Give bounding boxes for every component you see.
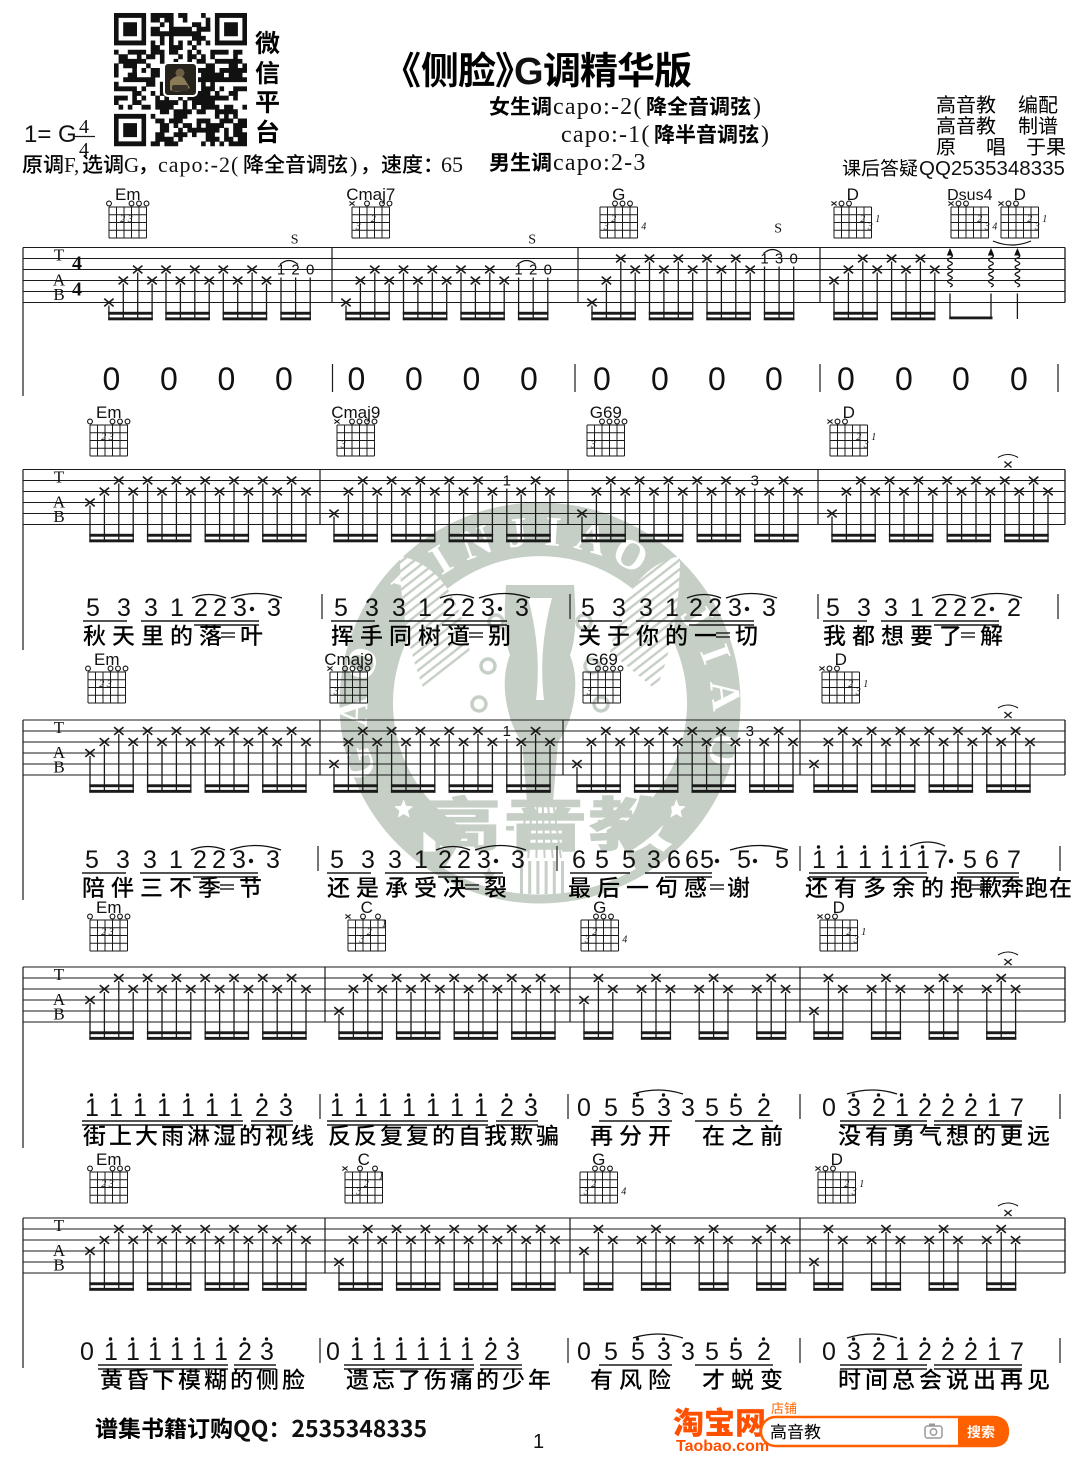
svg-text:2: 2 — [255, 1094, 269, 1122]
svg-text:0: 0 — [80, 1338, 94, 1366]
svg-text:2: 2 — [1007, 594, 1021, 622]
svg-text:5: 5 — [604, 1094, 618, 1122]
svg-text:0: 0 — [577, 1338, 591, 1366]
svg-text:1: 1 — [875, 214, 880, 225]
svg-text:6: 6 — [572, 846, 586, 874]
svg-text:1: 1 — [987, 1338, 1001, 1366]
svg-text:3: 3 — [515, 594, 529, 622]
svg-text:): ) — [761, 122, 769, 148]
svg-text:3: 3 — [260, 1338, 274, 1366]
svg-text:1: 1 — [503, 473, 511, 490]
svg-text:2: 2 — [484, 1338, 498, 1366]
svg-text:3: 3 — [775, 251, 783, 268]
svg-text:2: 2 — [101, 1179, 106, 1190]
svg-text:1: 1 — [170, 1338, 184, 1366]
svg-text:3: 3 — [583, 1187, 589, 1198]
svg-text:3: 3 — [681, 1338, 695, 1366]
svg-text:5: 5 — [729, 1338, 743, 1366]
svg-text:0: 0 — [1010, 361, 1028, 397]
svg-text:Em: Em — [115, 185, 141, 204]
svg-text:2: 2 — [964, 1338, 978, 1366]
svg-text:5: 5 — [826, 594, 840, 622]
svg-text:1: 1 — [192, 1338, 206, 1366]
svg-text:2: 2 — [194, 594, 208, 622]
svg-text:7: 7 — [1010, 1338, 1024, 1366]
svg-text:0: 0 — [348, 361, 366, 397]
svg-text:2: 2 — [101, 432, 106, 443]
svg-text:3: 3 — [267, 594, 281, 622]
svg-text:2: 2 — [611, 214, 616, 225]
svg-text:2: 2 — [120, 214, 125, 225]
svg-text:1: 1 — [416, 1338, 430, 1366]
svg-text:3: 3 — [388, 846, 402, 874]
svg-text:7: 7 — [1007, 846, 1021, 874]
svg-text:0: 0 — [326, 1338, 340, 1366]
svg-text:3: 3 — [481, 594, 495, 622]
svg-text:1: 1 — [372, 1338, 386, 1366]
svg-text:B: B — [53, 758, 64, 777]
svg-text:1: 1 — [503, 723, 511, 740]
svg-text:2: 2 — [364, 1179, 369, 1190]
svg-text:1: 1 — [157, 1094, 171, 1122]
svg-text:T: T — [54, 718, 65, 737]
svg-text:capo:-2(: capo:-2( — [158, 152, 239, 177]
svg-text:Em: Em — [96, 898, 122, 917]
svg-text:1: 1 — [858, 846, 872, 874]
svg-text:3: 3 — [1034, 222, 1040, 233]
svg-text:1: 1 — [916, 846, 930, 874]
svg-text:capo:2-3: capo:2-3 — [553, 150, 647, 176]
svg-text:0: 0 — [822, 1338, 836, 1366]
svg-text:A: A — [700, 677, 749, 713]
svg-text:0: 0 — [577, 1094, 591, 1122]
svg-text:5: 5 — [631, 1338, 645, 1366]
svg-text:5: 5 — [334, 594, 348, 622]
svg-text:1: 1 — [181, 1094, 195, 1122]
svg-text:2: 2 — [592, 927, 597, 938]
svg-text:6: 6 — [667, 846, 681, 874]
svg-text:2: 2 — [848, 679, 853, 690]
svg-text:3: 3 — [851, 1187, 857, 1198]
svg-text:3: 3 — [392, 594, 406, 622]
svg-text:3: 3 — [266, 846, 280, 874]
svg-text:1: 1 — [895, 1094, 909, 1122]
svg-text:1: 1 — [214, 1338, 228, 1366]
svg-text:5: 5 — [330, 846, 344, 874]
svg-text:5: 5 — [622, 846, 636, 874]
svg-text:): ) — [350, 152, 357, 177]
svg-text:5: 5 — [86, 594, 100, 622]
svg-text:1: 1 — [414, 846, 428, 874]
svg-text:3: 3 — [355, 222, 361, 233]
svg-text:3: 3 — [365, 594, 379, 622]
svg-text:Em: Em — [94, 650, 120, 669]
svg-text:1: 1 — [169, 846, 183, 874]
svg-text:1: 1 — [170, 594, 184, 622]
svg-text:3: 3 — [586, 687, 592, 698]
svg-text:1: 1 — [1042, 214, 1047, 225]
svg-text:3: 3 — [144, 594, 158, 622]
svg-text:1: 1 — [133, 1094, 147, 1122]
svg-text:0: 0 — [218, 361, 236, 397]
svg-text:1: 1 — [109, 1094, 123, 1122]
svg-text:0: 0 — [651, 361, 669, 397]
svg-text:3: 3 — [639, 594, 653, 622]
svg-text:2: 2 — [591, 1179, 596, 1190]
svg-text:1: 1 — [382, 919, 387, 930]
svg-text:T: T — [54, 468, 65, 487]
svg-text:3: 3 — [728, 594, 742, 622]
svg-text:3: 3 — [746, 723, 754, 740]
svg-text:2: 2 — [918, 1338, 932, 1366]
svg-text:1: 1 — [104, 1338, 118, 1366]
svg-text:2: 2 — [500, 1094, 514, 1122]
svg-text:0: 0 — [765, 361, 783, 397]
svg-text:I: I — [543, 509, 563, 556]
svg-text:3: 3 — [233, 594, 247, 622]
svg-text:G: G — [514, 51, 544, 93]
svg-text:S: S — [291, 233, 299, 248]
svg-text:B: B — [53, 1256, 64, 1275]
svg-text:3: 3 — [361, 846, 375, 874]
svg-text:0: 0 — [895, 361, 913, 397]
svg-text:3: 3 — [855, 687, 861, 698]
svg-text:3: 3 — [847, 1338, 861, 1366]
svg-text:3: 3 — [477, 846, 491, 874]
svg-text:0: 0 — [405, 361, 423, 397]
svg-text:1: 1 — [394, 1338, 408, 1366]
svg-text:3: 3 — [116, 846, 130, 874]
svg-text:65: 65 — [441, 152, 463, 177]
svg-text:2: 2 — [101, 927, 106, 938]
svg-text:3: 3 — [232, 846, 246, 874]
svg-text:3: 3 — [863, 440, 869, 451]
svg-text:7: 7 — [1010, 1094, 1024, 1122]
svg-text:3: 3 — [108, 1179, 114, 1190]
svg-text:3: 3 — [358, 935, 364, 946]
svg-text:0: 0 — [952, 361, 970, 397]
svg-text:3: 3 — [603, 222, 609, 233]
svg-text:3: 3 — [867, 222, 873, 233]
svg-text:3: 3 — [340, 440, 346, 451]
svg-text:1: 1 — [861, 927, 866, 938]
svg-text:0: 0 — [593, 361, 611, 397]
svg-text:1: 1 — [148, 1338, 162, 1366]
svg-text:2: 2 — [529, 262, 537, 279]
svg-text:QQ2535348335: QQ2535348335 — [919, 157, 1065, 180]
svg-text:1: 1 — [438, 1338, 452, 1366]
svg-text:3: 3 — [847, 1094, 861, 1122]
svg-text:2: 2 — [934, 594, 948, 622]
svg-text:0: 0 — [275, 361, 293, 397]
svg-text:1: 1 — [126, 1338, 140, 1366]
svg-text:1: 1 — [880, 846, 894, 874]
svg-text:0: 0 — [790, 251, 798, 268]
svg-text:2: 2 — [941, 1094, 955, 1122]
svg-text:2: 2 — [291, 262, 299, 279]
svg-text:6: 6 — [985, 846, 999, 874]
svg-text:1= G: 1= G — [24, 121, 77, 148]
svg-text:5: 5 — [737, 846, 751, 874]
svg-text:1: 1 — [812, 846, 826, 874]
svg-text:2: 2 — [860, 214, 865, 225]
svg-text:3: 3 — [106, 679, 112, 690]
svg-text:3: 3 — [584, 935, 590, 946]
svg-text:0: 0 — [103, 361, 121, 397]
svg-text:3: 3 — [511, 846, 525, 874]
svg-text:5: 5 — [729, 1094, 743, 1122]
svg-text:1: 1 — [418, 594, 432, 622]
svg-text:4: 4 — [622, 935, 627, 946]
svg-text:2: 2 — [689, 594, 703, 622]
svg-text:3: 3 — [984, 222, 990, 233]
svg-text:4: 4 — [72, 253, 82, 275]
svg-text:4: 4 — [641, 222, 646, 233]
svg-text:1: 1 — [85, 1094, 99, 1122]
svg-text:2: 2 — [371, 214, 376, 225]
svg-text:1: 1 — [863, 679, 868, 690]
svg-text:Dsus4: Dsus4 — [947, 187, 992, 204]
svg-text:1: 1 — [835, 846, 849, 874]
svg-text:4: 4 — [621, 1187, 626, 1198]
svg-text:2: 2 — [99, 679, 104, 690]
svg-text:2: 2 — [918, 1094, 932, 1122]
svg-text:1: 1 — [895, 1338, 909, 1366]
svg-text:Em: Em — [96, 403, 122, 422]
svg-text:3: 3 — [117, 594, 131, 622]
svg-text:1: 1 — [402, 1094, 416, 1122]
svg-text:T: T — [54, 965, 65, 984]
svg-text:Em: Em — [96, 1150, 122, 1169]
svg-text:1: 1 — [460, 1338, 474, 1366]
svg-text:3: 3 — [279, 1094, 293, 1122]
svg-text:5: 5 — [85, 846, 99, 874]
svg-text:1: 1 — [330, 1094, 344, 1122]
svg-text:1: 1 — [426, 1094, 440, 1122]
svg-text:0: 0 — [520, 361, 538, 397]
svg-text:2: 2 — [442, 594, 456, 622]
svg-text:2: 2 — [757, 1338, 771, 1366]
svg-text:B: B — [53, 1005, 64, 1024]
svg-text:3: 3 — [681, 1094, 695, 1122]
svg-text:2: 2 — [238, 1338, 252, 1366]
svg-text:2: 2 — [973, 594, 987, 622]
svg-text:): ) — [753, 94, 761, 120]
svg-text:3: 3 — [853, 935, 859, 946]
svg-text:2: 2 — [941, 1338, 955, 1366]
svg-text:3: 3 — [762, 594, 776, 622]
svg-text:0: 0 — [463, 361, 481, 397]
svg-text:1: 1 — [450, 1094, 464, 1122]
svg-text:5: 5 — [963, 846, 977, 874]
svg-text:3: 3 — [108, 927, 114, 938]
svg-text:2: 2 — [872, 1094, 886, 1122]
svg-text:S: S — [774, 222, 782, 237]
svg-text:1: 1 — [898, 846, 912, 874]
svg-text:3: 3 — [857, 594, 871, 622]
svg-text:3: 3 — [524, 1094, 538, 1122]
svg-text:5: 5 — [705, 1094, 719, 1122]
svg-text:0: 0 — [708, 361, 726, 397]
svg-text:G: G — [124, 153, 139, 177]
svg-text:2: 2 — [1027, 214, 1032, 225]
svg-text:3: 3 — [108, 432, 114, 443]
svg-text:3: 3 — [590, 440, 596, 451]
svg-text:B: B — [53, 507, 64, 526]
svg-text:3: 3 — [657, 1094, 671, 1122]
svg-text:5: 5 — [581, 594, 595, 622]
svg-text:1: 1 — [910, 594, 924, 622]
svg-text:6: 6 — [685, 846, 699, 874]
svg-text:1: 1 — [859, 1179, 864, 1190]
svg-text:1: 1 — [379, 1171, 384, 1182]
svg-text:4: 4 — [72, 279, 82, 301]
svg-text:2: 2 — [438, 846, 452, 874]
svg-text:3: 3 — [127, 214, 133, 225]
svg-text:0: 0 — [160, 361, 178, 397]
svg-text:1: 1 — [378, 1094, 392, 1122]
svg-text:0: 0 — [306, 262, 314, 279]
svg-text:4: 4 — [992, 222, 997, 233]
svg-text:0: 0 — [544, 262, 552, 279]
svg-text:3: 3 — [333, 687, 339, 698]
svg-text:2: 2 — [844, 1179, 849, 1190]
svg-text:0: 0 — [837, 361, 855, 397]
svg-text:3: 3 — [751, 473, 759, 490]
svg-text:F,: F, — [64, 153, 79, 177]
svg-text:S: S — [528, 233, 536, 248]
svg-text:2: 2 — [856, 432, 861, 443]
svg-text:capo:-2(: capo:-2( — [553, 94, 643, 120]
svg-text:Taobao.com: Taobao.com — [676, 1438, 769, 1455]
svg-text:2: 2 — [872, 1338, 886, 1366]
svg-text:2: 2 — [757, 1094, 771, 1122]
svg-text:3: 3 — [647, 846, 661, 874]
svg-text:5: 5 — [631, 1094, 645, 1122]
svg-text:1: 1 — [987, 1094, 1001, 1122]
svg-text:1: 1 — [871, 432, 876, 443]
svg-text:1: 1 — [205, 1094, 219, 1122]
svg-text:7: 7 — [934, 846, 948, 874]
svg-text:3: 3 — [657, 1338, 671, 1366]
svg-text:T: T — [54, 246, 65, 265]
svg-text:1: 1 — [229, 1094, 243, 1122]
svg-text:3: 3 — [884, 594, 898, 622]
svg-text:1: 1 — [533, 1431, 544, 1453]
svg-text:T: T — [54, 1216, 65, 1235]
svg-text:5: 5 — [604, 1338, 618, 1366]
svg-text:2: 2 — [846, 927, 851, 938]
svg-text:3: 3 — [612, 594, 626, 622]
svg-text:1: 1 — [350, 1338, 364, 1366]
svg-text:3: 3 — [506, 1338, 520, 1366]
svg-text:1: 1 — [665, 594, 679, 622]
svg-text:1: 1 — [474, 1094, 488, 1122]
svg-text:1: 1 — [354, 1094, 368, 1122]
svg-text:3: 3 — [143, 846, 157, 874]
svg-text:5: 5 — [595, 846, 609, 874]
svg-text:4: 4 — [79, 116, 89, 138]
svg-text:3: 3 — [355, 1187, 361, 1198]
svg-text:2: 2 — [193, 846, 207, 874]
svg-text:5: 5 — [700, 846, 714, 874]
svg-text:0: 0 — [822, 1094, 836, 1122]
svg-text:5: 5 — [705, 1338, 719, 1366]
svg-text:B: B — [53, 285, 64, 304]
svg-text:capo:-1(: capo:-1( — [561, 122, 651, 148]
svg-text:2: 2 — [977, 214, 982, 225]
svg-text:2: 2 — [367, 927, 372, 938]
svg-text:2: 2 — [964, 1094, 978, 1122]
